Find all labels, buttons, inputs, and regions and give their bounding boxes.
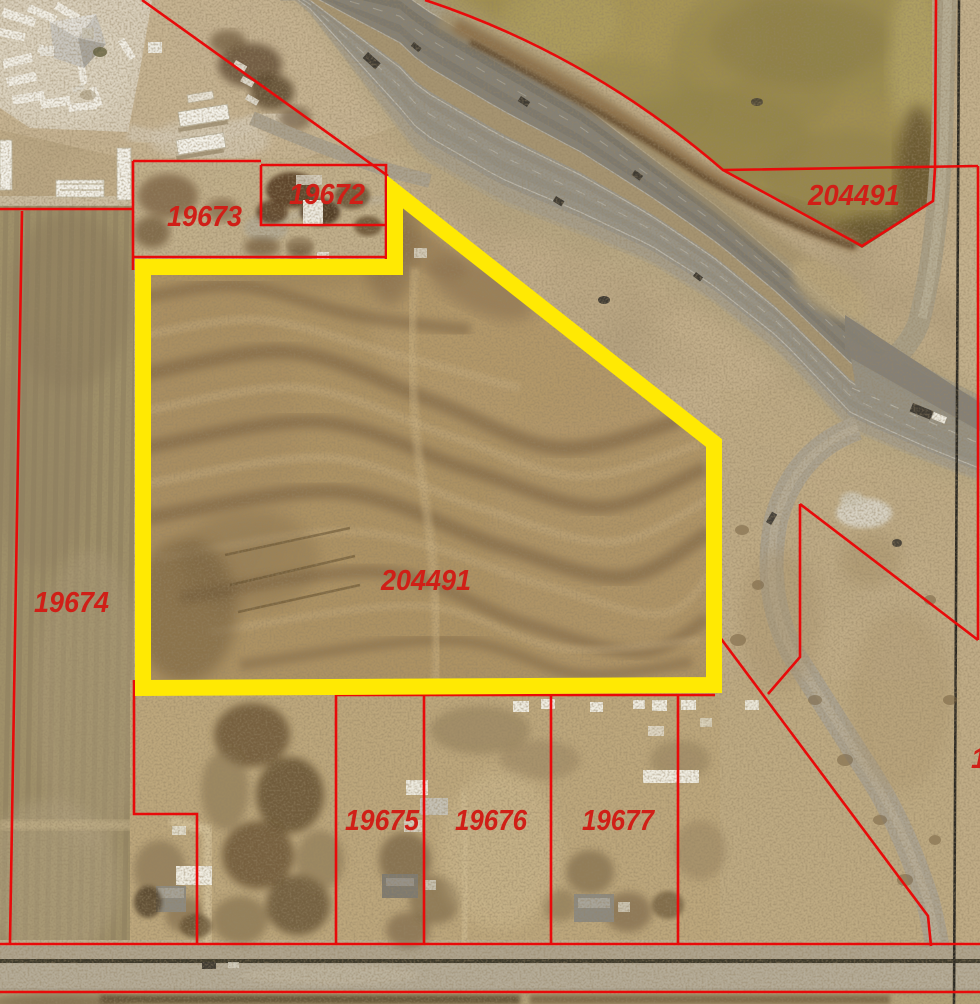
svg-text:19672: 19672 bbox=[289, 179, 365, 211]
svg-text:204491: 204491 bbox=[807, 180, 900, 212]
svg-text:19676: 19676 bbox=[455, 805, 528, 837]
svg-text:204491: 204491 bbox=[380, 565, 471, 597]
svg-text:19675: 19675 bbox=[345, 805, 420, 837]
svg-text:19673: 19673 bbox=[167, 201, 242, 233]
svg-text:19674: 19674 bbox=[34, 587, 109, 619]
svg-text:1: 1 bbox=[971, 743, 980, 775]
svg-text:19677: 19677 bbox=[582, 805, 656, 837]
